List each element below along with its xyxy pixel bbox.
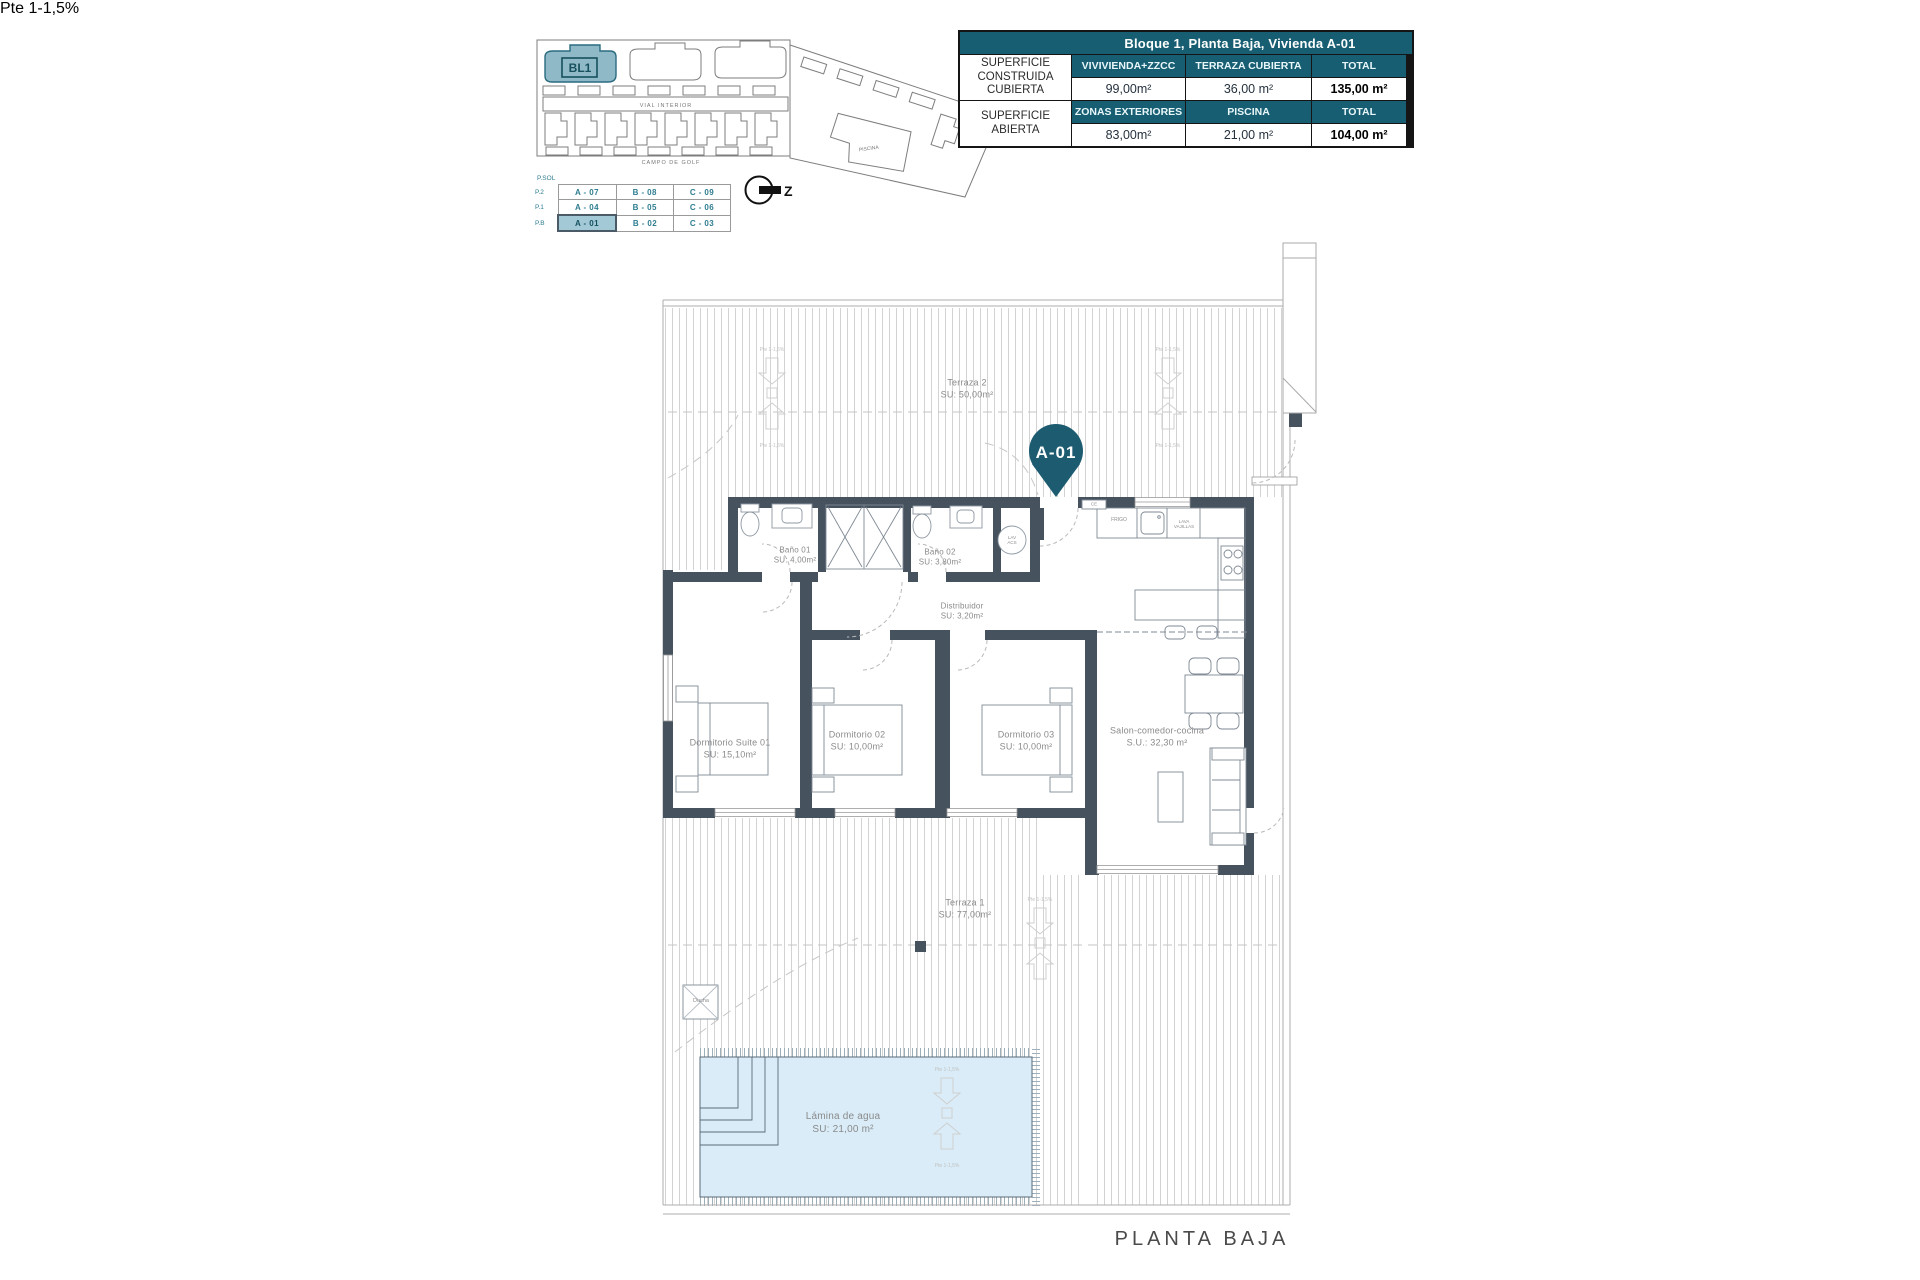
col-header: PISCINA <box>1186 101 1311 123</box>
road-label: VIAL INTERIOR <box>640 103 693 109</box>
table-row: P.B A - 01 B - 02 C - 03 <box>535 215 731 231</box>
floorplan-drawing: BL1 VIAL INTERIOR CAMPO DE GOLF PISCINA … <box>0 0 1920 1280</box>
ce-label: CE <box>1091 501 1097 506</box>
slope-label: Pte 1-1,5% <box>1156 443 1181 449</box>
summary-table: Bloque 1, Planta Baja, Vivienda A-01 SUP… <box>958 30 1414 148</box>
dining-table <box>1185 675 1243 713</box>
deck-drain-square <box>915 941 926 952</box>
nightstand <box>812 777 834 792</box>
golf-label: CAMPO DE GOLF <box>642 160 701 166</box>
slope-label: Pte 1-1,5% <box>1156 347 1181 353</box>
unit-cell-highlighted: A - 01 <box>558 215 616 231</box>
col-header: ZONAS EXTERIORES <box>1072 101 1185 123</box>
summary-section2-label: SUPERFICIE ABIERTA <box>960 101 1071 146</box>
nightstand <box>676 686 698 702</box>
lavavajillas-label: LAVA VAJILLAS <box>1171 519 1197 529</box>
page-title: PLANTA BAJA <box>1115 1228 1290 1251</box>
coffee-table <box>1158 772 1183 822</box>
toilet1-tank <box>741 504 759 512</box>
unit-cell: A - 04 <box>558 200 616 216</box>
room-label-dorm02: Dormitorio 02 SU: 10,00m² <box>829 729 886 752</box>
room-label-terraza1: Terraza 1 SU: 77,00m² <box>939 897 992 920</box>
slope-label: Pte 1-1,5% <box>935 1163 960 1169</box>
nightstand <box>676 776 698 792</box>
room-label-distribuidor: Distribuidor SU: 3,20m² <box>941 602 984 623</box>
nightstand <box>1050 777 1072 792</box>
toilet2-tank <box>913 506 931 514</box>
parking-row-bottom <box>546 147 772 155</box>
unit-cell: C - 06 <box>674 200 731 216</box>
unit-cell: A - 07 <box>558 185 616 200</box>
chair <box>1217 713 1239 729</box>
slope-arrow-icon <box>1155 358 1181 429</box>
sofa <box>1210 748 1246 845</box>
unit-cell: B - 08 <box>616 185 674 200</box>
slope-arrow-icon <box>759 358 785 429</box>
sink1-basin <box>782 508 802 523</box>
unit-cell: C - 09 <box>674 185 731 200</box>
nightstand <box>1050 688 1072 703</box>
slope-label: Pte 1-1,5% <box>760 347 785 353</box>
room-label-salon: Salon-comedor-cocina S.U.: 32,30 m² <box>1110 725 1204 748</box>
unit-pin-label: A-01 <box>1036 443 1077 462</box>
nightstand <box>812 688 834 703</box>
col-header: TERRAZA CUBIERTA <box>1186 55 1311 77</box>
col-header: TOTAL <box>1312 55 1406 77</box>
room-label-bano2: Baño 02 SU: 3,80m² <box>919 548 961 569</box>
slope-label: Pte 1-1,5% <box>935 1067 960 1073</box>
room-label-dorm03: Dormitorio 03 SU: 10,00m² <box>998 729 1055 752</box>
unit-cell: C - 03 <box>674 215 731 231</box>
houses-row <box>545 113 777 145</box>
frigo-label: FRIGO <box>1111 518 1127 524</box>
north-arrow <box>746 177 782 204</box>
table-row: P.2 A - 07 B - 08 C - 09 <box>535 185 731 200</box>
north-letter: Z <box>784 183 793 199</box>
sink2-basin <box>957 510 974 523</box>
level-label: P.1 <box>535 200 558 216</box>
slope-label: Pte 1-1,5% <box>760 443 785 449</box>
angled-parcel-content <box>777 57 965 191</box>
area-total: 135,00 m² <box>1312 78 1406 100</box>
area-value: 99,00m² <box>1072 78 1185 100</box>
room-label-suite01: Dormitorio Suite 01 SU: 15,10m² <box>690 737 771 760</box>
level-label: P.2 <box>535 185 558 200</box>
room-label-ducha: Ducha <box>693 998 709 1004</box>
unit-cell: B - 02 <box>616 215 674 231</box>
slope-arrow-icon <box>1027 908 1053 979</box>
plan-sheet: BL1 VIAL INTERIOR CAMPO DE GOLF PISCINA … <box>0 0 1920 1280</box>
terrace-gate <box>1252 477 1297 485</box>
site-plan <box>537 40 1000 197</box>
washer-label: LAV ACS <box>1004 535 1020 545</box>
area-value: 83,00m² <box>1072 124 1185 146</box>
chair <box>1189 658 1211 674</box>
col-header: VIVIVIENDA+ZZCC <box>1072 55 1185 77</box>
room-label-bano1: Baño 01 SU: 4,00m² <box>774 546 816 567</box>
slope-label: Pte 1-1,5% <box>1028 897 1053 903</box>
bl1-label: BL1 <box>569 61 592 75</box>
toilet2-icon <box>913 514 931 538</box>
area-value: 36,00 m² <box>1186 78 1311 100</box>
stair-strip <box>1283 243 1316 413</box>
units-table: P.2 A - 07 B - 08 C - 09 P.1 A - 04 B - … <box>535 184 731 232</box>
unit-cell: B - 05 <box>616 200 674 216</box>
table-row: P.1 A - 04 B - 05 C - 06 <box>535 200 731 216</box>
summary-title: Bloque 1, Planta Baja, Vivienda A-01 <box>960 32 1412 54</box>
col-header: TOTAL <box>1312 101 1406 123</box>
room-label-lamina: Lámina de agua SU: 21,00 m² <box>806 1110 881 1136</box>
summary-section1-label: SUPERFICIE CONSTRUIDA CUBIERTA <box>960 55 1071 100</box>
toilet1-icon <box>741 512 759 536</box>
parking-row-top <box>543 86 775 95</box>
chair <box>1217 658 1239 674</box>
area-total: 104,00 m² <box>1312 124 1406 146</box>
units-corner-label: P.SOL <box>537 175 555 182</box>
piscina-site-label: PISCINA <box>859 145 880 154</box>
level-label: P.B <box>535 215 558 231</box>
room-label-terraza2: Terraza 2 SU: 50,00m² <box>941 377 994 400</box>
area-value: 21,00 m² <box>1186 124 1311 146</box>
